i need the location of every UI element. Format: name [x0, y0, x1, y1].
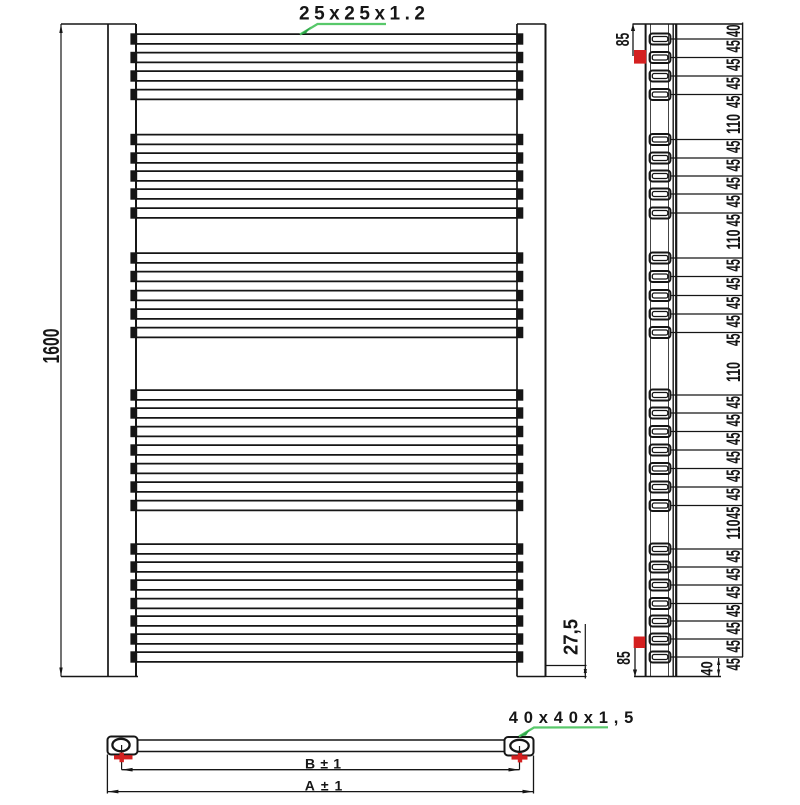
svg-text:85: 85 — [613, 651, 634, 665]
svg-text:27,5: 27,5 — [561, 619, 583, 655]
svg-text:45: 45 — [724, 658, 745, 671]
svg-text:45: 45 — [724, 214, 745, 227]
svg-text:45: 45 — [724, 586, 745, 599]
svg-text:45: 45 — [724, 77, 745, 90]
svg-text:45: 45 — [724, 58, 745, 71]
svg-text:40x40x1,5: 40x40x1,5 — [509, 709, 634, 727]
svg-text:40: 40 — [724, 25, 745, 38]
svg-text:110: 110 — [724, 114, 745, 134]
svg-text:25x25x1.2: 25x25x1.2 — [299, 4, 425, 25]
svg-text:45: 45 — [724, 414, 745, 427]
svg-text:85: 85 — [612, 33, 633, 47]
svg-text:45: 45 — [724, 568, 745, 581]
svg-text:45: 45 — [724, 550, 745, 563]
svg-text:45: 45 — [724, 640, 745, 653]
svg-text:45: 45 — [724, 40, 745, 53]
svg-text:45: 45 — [724, 333, 745, 346]
svg-text:45: 45 — [724, 432, 745, 445]
svg-text:45: 45 — [724, 95, 745, 108]
svg-text:45: 45 — [724, 396, 745, 409]
svg-text:B±1: B±1 — [305, 755, 341, 771]
svg-text:40: 40 — [698, 661, 717, 676]
svg-text:45: 45 — [724, 451, 745, 464]
svg-text:45: 45 — [724, 177, 745, 190]
svg-text:45: 45 — [724, 277, 745, 290]
svg-text:45: 45 — [724, 195, 745, 208]
svg-text:45: 45 — [724, 506, 745, 519]
svg-text:45: 45 — [724, 604, 745, 617]
svg-text:45: 45 — [724, 259, 745, 272]
svg-text:45: 45 — [724, 140, 745, 153]
svg-text:45: 45 — [724, 469, 745, 482]
svg-text:45: 45 — [724, 296, 745, 309]
svg-text:45: 45 — [724, 488, 745, 501]
svg-text:45: 45 — [724, 315, 745, 328]
svg-text:110: 110 — [724, 362, 745, 382]
svg-text:110: 110 — [724, 230, 745, 250]
svg-text:A±1: A±1 — [305, 778, 343, 794]
svg-text:45: 45 — [724, 159, 745, 172]
svg-text:110: 110 — [724, 520, 745, 540]
svg-text:45: 45 — [724, 622, 745, 635]
svg-text:1600: 1600 — [38, 329, 64, 364]
